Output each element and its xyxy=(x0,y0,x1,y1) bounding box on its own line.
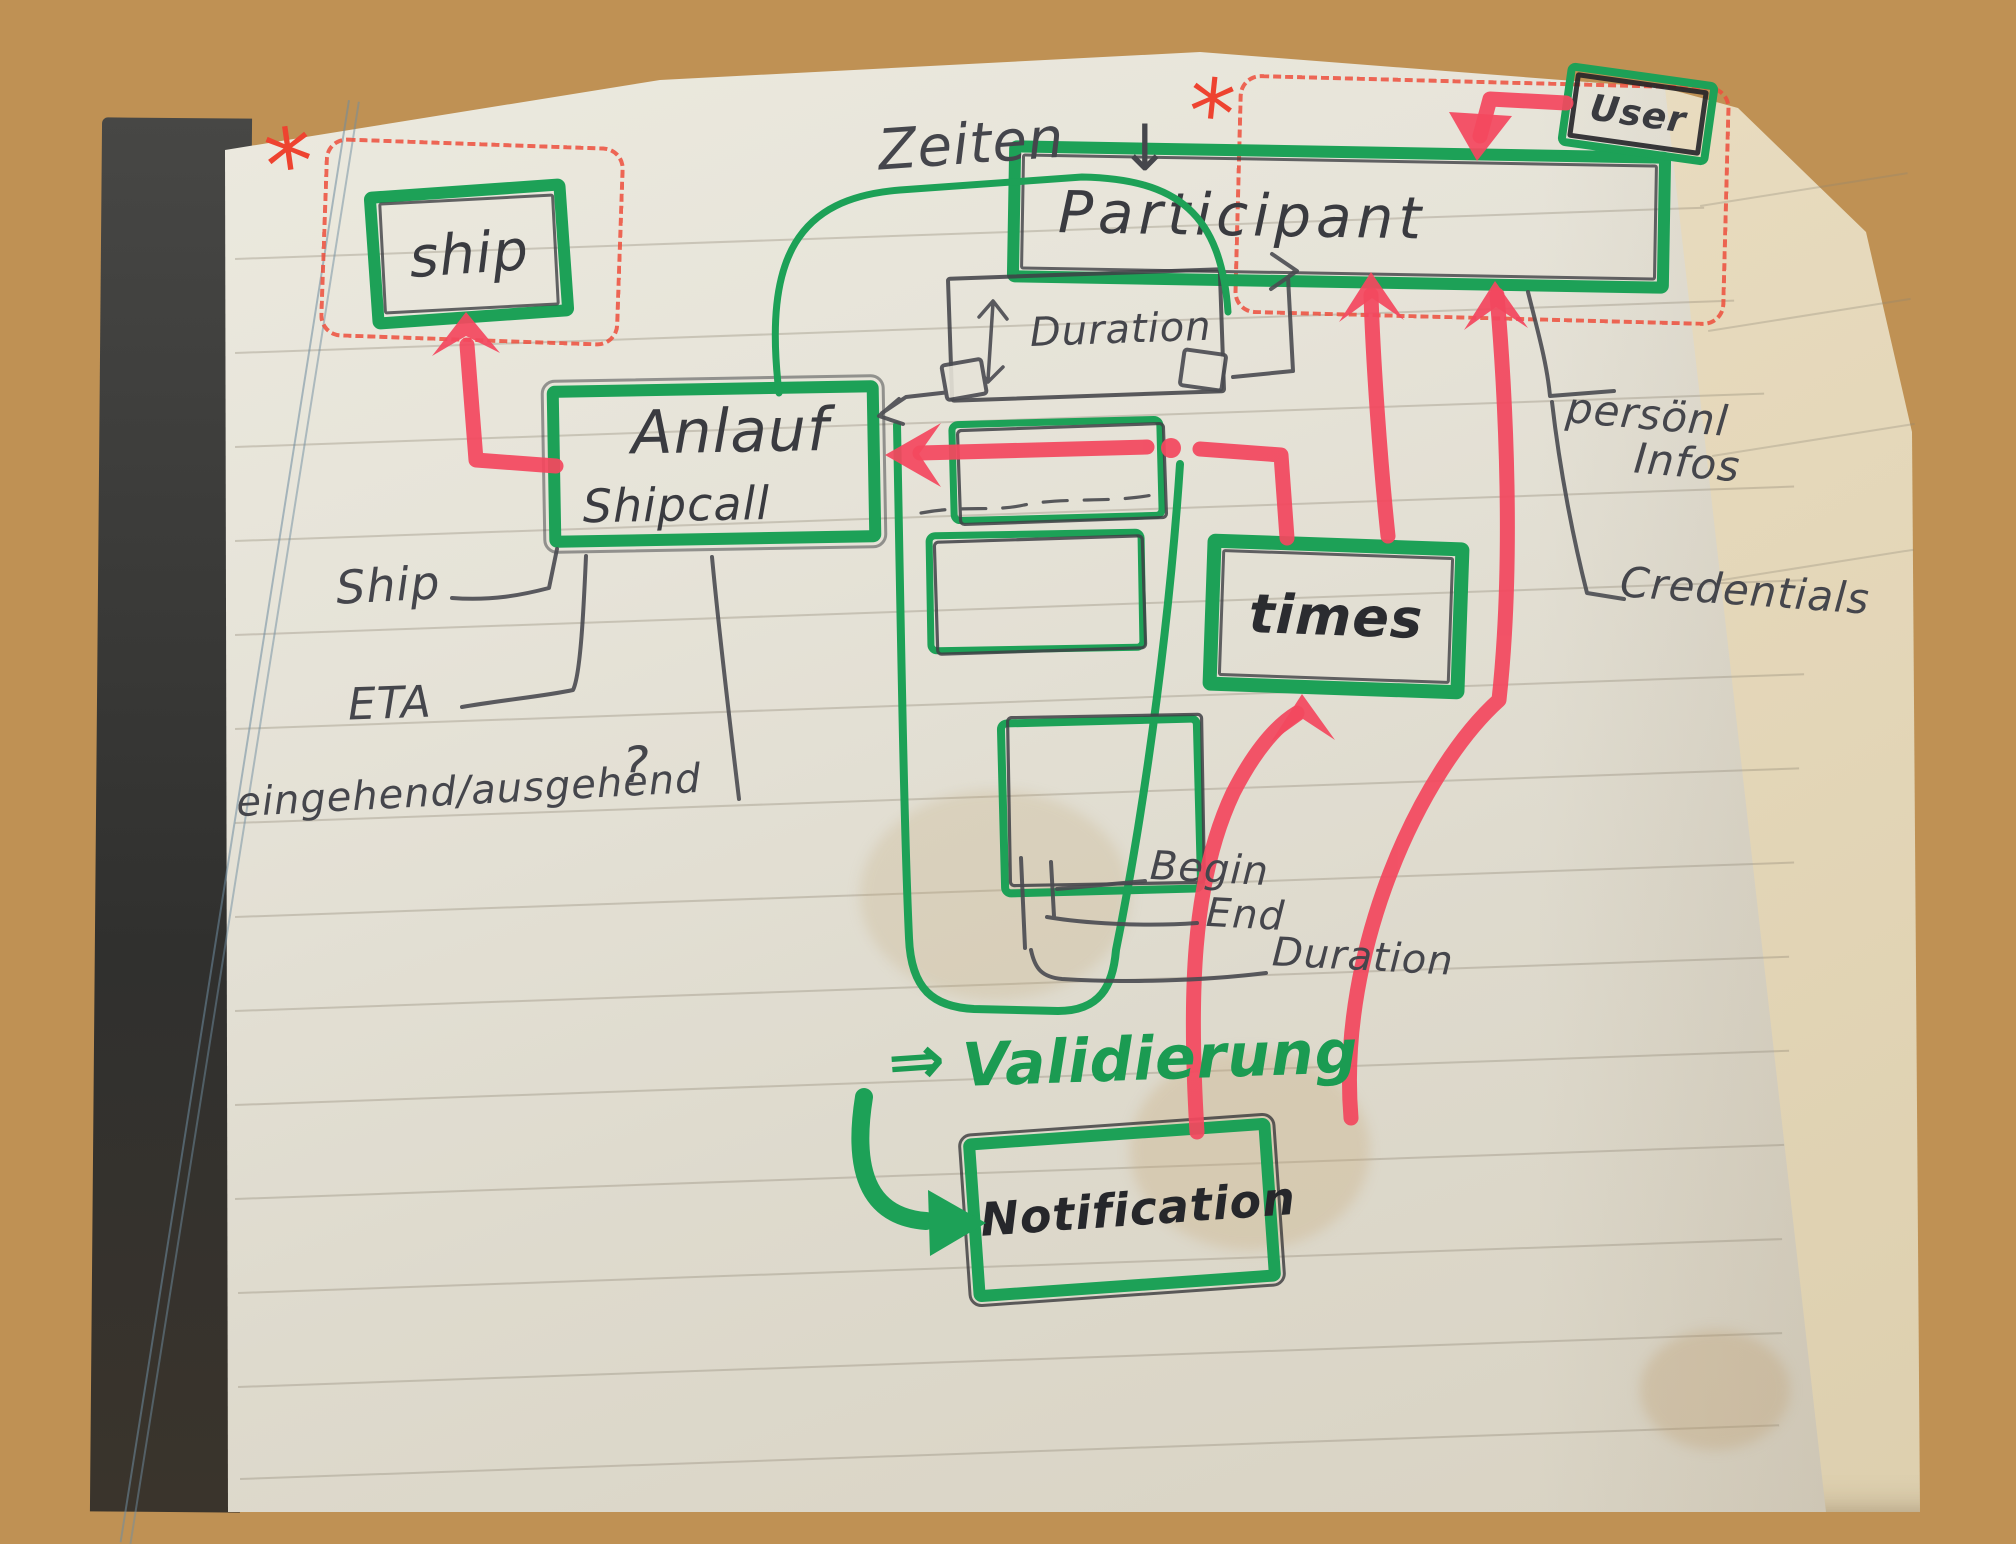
anlauf-entity-box: Anlauf Shipcall xyxy=(547,380,882,548)
anlauf-entity-label: Anlauf xyxy=(631,395,830,468)
ship-entity-label: ship xyxy=(407,217,531,290)
paper-stain xyxy=(1640,1330,1790,1450)
duration-field-label: Duration xyxy=(1271,929,1455,984)
direction-question-mark: ? xyxy=(622,736,650,794)
ship-entity-box: ship xyxy=(363,178,574,330)
participant-entity-label: Participant xyxy=(1057,178,1426,252)
duration-box: Duration xyxy=(946,267,1226,403)
times-entity-box: times xyxy=(1202,533,1469,699)
validierung-annotation: Validierung xyxy=(961,1017,1360,1101)
paper-stain xyxy=(860,790,1130,1000)
times-entity-label: times xyxy=(1248,582,1424,651)
zeiten-down-arrow-icon: ↓ xyxy=(1118,112,1173,186)
user-entity-label: User xyxy=(1587,87,1689,141)
zeiten-annotation: Zeiten xyxy=(876,106,1066,184)
eta-field-label: ETA xyxy=(347,677,432,731)
anlauf-entity-sublabel: Shipcall xyxy=(582,476,770,533)
ship-field-label: Ship xyxy=(335,555,442,614)
notification-entity-box: Notification xyxy=(963,1117,1282,1302)
notification-entity-label: Notification xyxy=(978,1171,1297,1247)
begin-field-label: Begin xyxy=(1149,843,1270,895)
duration-box-label: Duration xyxy=(1029,304,1212,356)
personal-infos-label-line2: Infos xyxy=(1632,433,1742,491)
validierung-arrow-icon: ⇒ xyxy=(885,1020,948,1103)
